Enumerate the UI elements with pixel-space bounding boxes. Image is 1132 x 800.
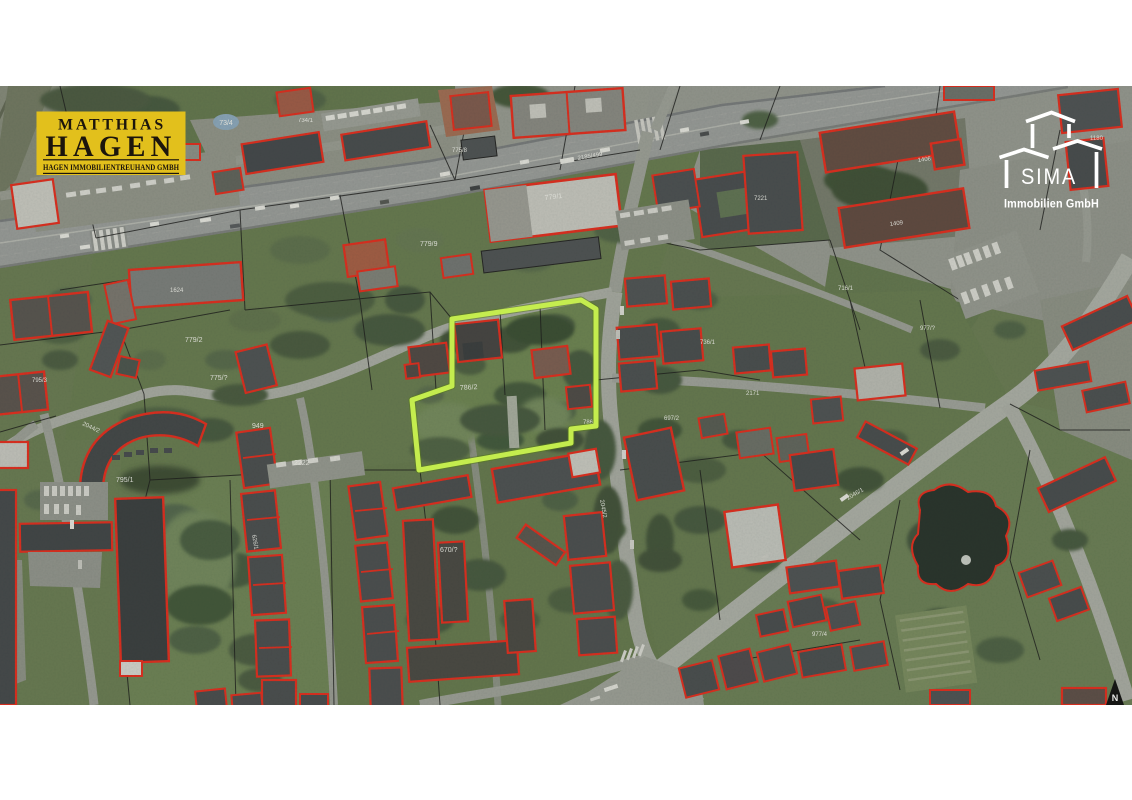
svg-text:Immobilien GmbH: Immobilien GmbH	[1004, 197, 1099, 211]
svg-text:HAGEN: HAGEN	[46, 130, 177, 163]
svg-text:HAGEN IMMOBILIENTREUHAND GMBH: HAGEN IMMOBILIENTREUHAND GMBH	[43, 163, 179, 172]
svg-text:SIMA: SIMA	[1021, 164, 1077, 189]
